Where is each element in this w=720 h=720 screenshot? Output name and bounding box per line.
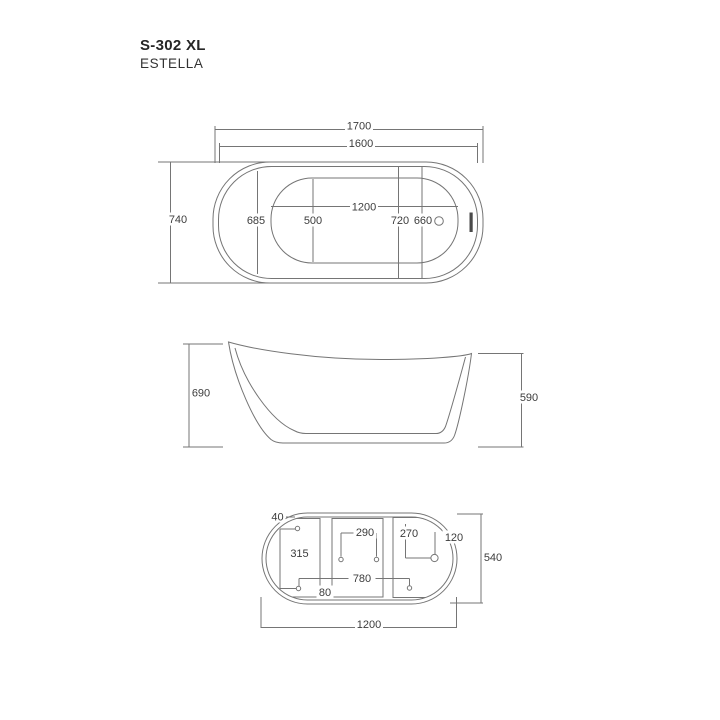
bottom-view: 40 315 290 270 120 540 780 80 1200	[255, 511, 504, 632]
dim-270-label: 270	[400, 528, 418, 540]
technical-drawing-page: 1700 1600 740 685 500 1200 720 660 690 5…	[0, 0, 720, 720]
dim-height-rear-label: 690	[192, 388, 210, 400]
dim-basin-length-label: 1200	[352, 202, 376, 214]
dim-overall-length-label: 1700	[347, 121, 371, 133]
dim-315-label: 315	[290, 548, 308, 560]
dim-40-label: 40	[271, 512, 283, 524]
dim-base-width-label: 540	[484, 552, 502, 564]
mounting-hole-icon	[407, 586, 411, 590]
side-view: 690 590	[183, 342, 540, 447]
top-view: 1700 1600 740 685 500 1200 720 660	[158, 119, 483, 283]
overflow-slot-icon	[470, 213, 473, 233]
dim-290-label: 290	[356, 527, 374, 539]
tub-profile-inner	[235, 348, 466, 434]
mounting-hole-icon	[295, 526, 299, 530]
dim-80-label: 80	[319, 587, 331, 599]
dim-basin-width-label: 500	[304, 215, 322, 227]
drain-hole-icon	[435, 217, 444, 226]
dim-height-front-label: 590	[520, 392, 538, 404]
bathtub-technical-drawing: 1700 1600 740 685 500 1200 720 660 690 5…	[0, 0, 720, 720]
dim-660-label: 660	[414, 215, 432, 227]
dim-base-length-label: 1200	[357, 619, 381, 631]
dim-720-label: 720	[391, 215, 409, 227]
model-number: S-302 XL	[140, 37, 206, 54]
mounting-hole-icon	[296, 586, 300, 590]
mounting-hole-icon	[374, 557, 378, 561]
tub-profile-outer	[229, 342, 472, 443]
drain-hole-icon	[431, 554, 438, 561]
dim-overall-width-label: 740	[169, 214, 187, 226]
series-name: ESTELLA	[140, 56, 203, 71]
dim-rim-width-label: 685	[247, 215, 265, 227]
mounting-hole-icon	[339, 557, 343, 561]
dim-120-label: 120	[445, 532, 463, 544]
title-block: S-302 XL ESTELLA	[140, 37, 206, 71]
dim-780-label: 780	[353, 573, 371, 585]
dim-rim-length-label: 1600	[349, 138, 373, 150]
